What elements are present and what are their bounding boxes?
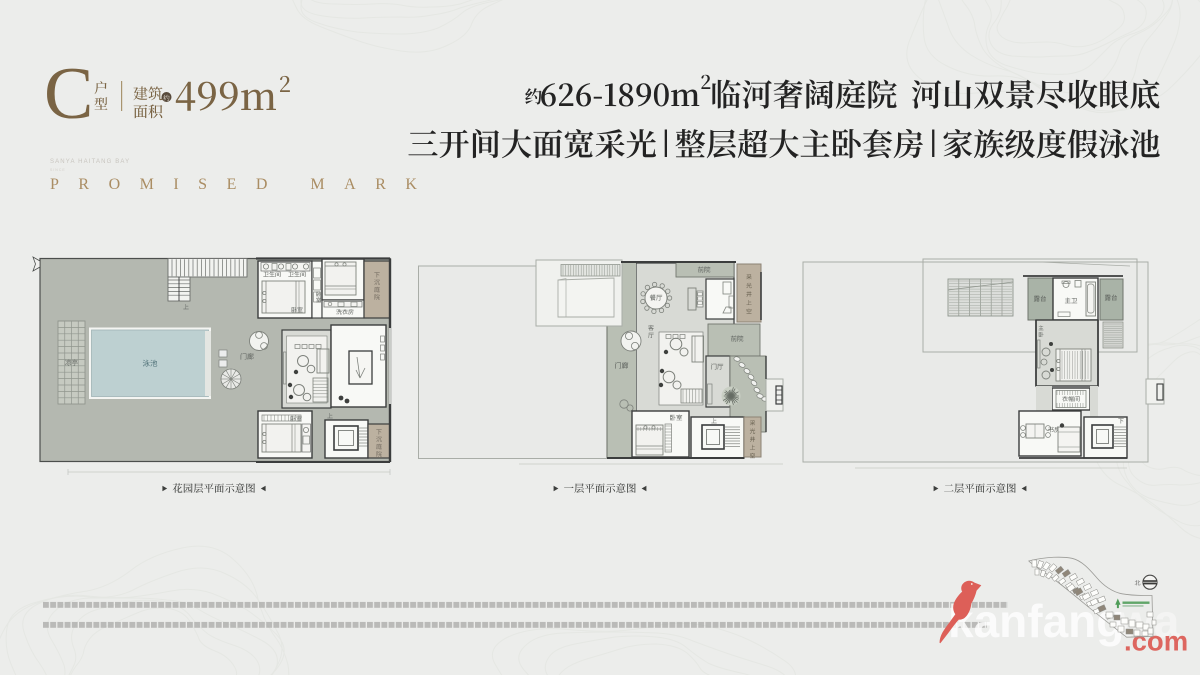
svg-text:SANYA HAITANG BAY: SANYA HAITANG BAY <box>50 159 130 165</box>
svg-text:.com: .com <box>1124 626 1188 657</box>
svg-text:SINCE: SINCE <box>50 168 66 172</box>
svg-text:PROMISED MARK: PROMISED MARK <box>50 176 436 193</box>
svg-text:C: C <box>44 53 93 135</box>
